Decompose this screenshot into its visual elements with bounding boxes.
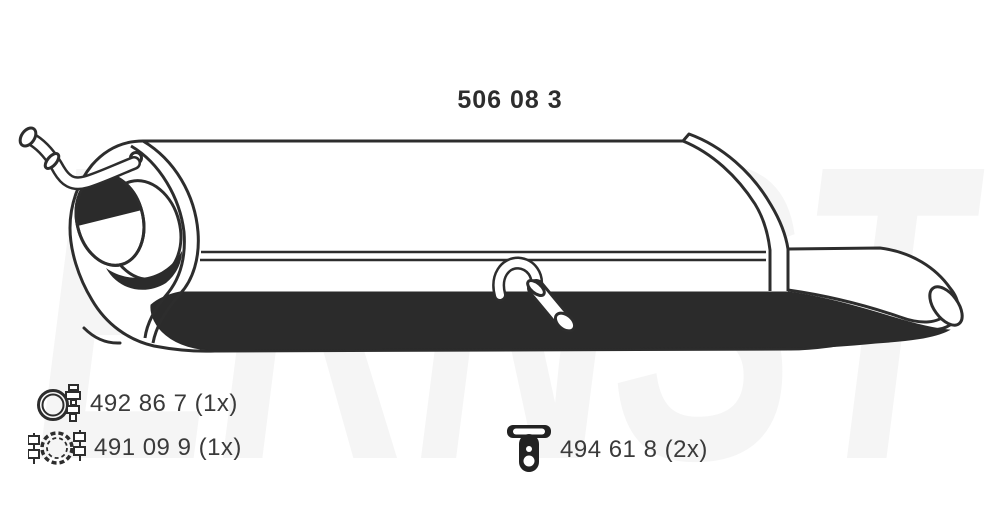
part-number-title: 506 08 3: [385, 86, 635, 115]
mounting-clamp-icon: [28, 427, 86, 469]
accessory-label: 491 09 9 (1x): [94, 434, 242, 462]
accessory-row-rubber-hanger: 494 61 8 (2x): [506, 424, 708, 476]
accessory-label: 492 86 7 (1x): [90, 390, 238, 418]
pipe-clamp-icon: [36, 383, 82, 425]
accessory-label: 494 61 8 (2x): [560, 436, 708, 464]
accessory-row-pipe-clamp: 492 86 7 (1x): [36, 383, 238, 425]
accessory-row-mounting-clamp: 491 09 9 (1x): [28, 427, 242, 469]
rubber-hanger-icon: [506, 424, 552, 476]
catalog-image: ERNST: [0, 0, 1000, 505]
